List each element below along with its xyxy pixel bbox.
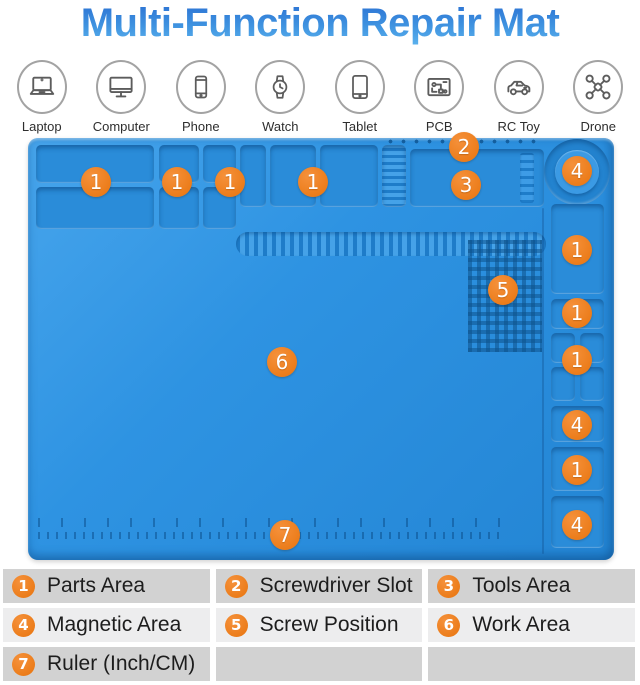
legend-item-ruler: 7 Ruler (Inch/CM): [3, 647, 210, 681]
laptop-icon: [17, 60, 67, 114]
area-marker-parts: 1: [162, 167, 192, 197]
pcb-icon: [414, 60, 464, 114]
area-marker-parts: 1: [562, 455, 592, 485]
device-tablet: Tablet: [321, 60, 399, 136]
device-label: Tablet: [342, 119, 377, 134]
area-marker-magnetic: 4: [562, 510, 592, 540]
legend-number-badge: 4: [12, 614, 35, 637]
legend-table: 1 Parts Area 2 Screwdriver Slot 3 Tools …: [0, 569, 640, 681]
page-title: Multi-Function Repair Mat: [0, 1, 640, 46]
area-marker-parts: 1: [81, 167, 111, 197]
legend-number-badge: 7: [12, 653, 35, 676]
legend-number-badge: 3: [437, 575, 460, 598]
legend-number-badge: 2: [225, 575, 248, 598]
area-marker-parts: 1: [215, 167, 245, 197]
product-infographic: Multi-Function Repair Mat Laptop Compute…: [0, 0, 640, 685]
legend-item-screw-position: 5 Screw Position: [216, 608, 423, 642]
legend-item-screwdriver-slot: 2 Screwdriver Slot: [216, 569, 423, 603]
parts-tray-wide: [320, 145, 378, 207]
legend-item-parts-area: 1 Parts Area: [3, 569, 210, 603]
area-marker-ruler: 7: [270, 520, 300, 550]
legend-item-work-area: 6 Work Area: [428, 608, 635, 642]
area-marker-parts: 1: [298, 167, 328, 197]
column-groove: [542, 208, 544, 554]
device-pcb: PCB: [400, 60, 478, 136]
legend-item-magnetic-area: 4 Magnetic Area: [3, 608, 210, 642]
area-marker-parts: 1: [562, 235, 592, 265]
device-laptop: Laptop: [3, 60, 81, 136]
legend-label: Screw Position: [260, 613, 399, 637]
area-marker-work-area: 6: [267, 347, 297, 377]
legend-label: Parts Area: [47, 574, 145, 598]
ribbed-strip: [382, 145, 406, 207]
watch-icon: [255, 60, 305, 114]
legend-label: Screwdriver Slot: [260, 574, 413, 598]
legend-number-badge: 1: [12, 575, 35, 598]
legend-label: Tools Area: [472, 574, 570, 598]
area-marker-magnetic: 4: [562, 156, 592, 186]
legend-empty-cell: [216, 647, 423, 681]
drone-icon: [573, 60, 623, 114]
device-label: Drone: [581, 119, 616, 134]
area-marker-magnetic: 4: [562, 410, 592, 440]
tablet-icon: [335, 60, 385, 114]
device-rc-toy: RC Toy: [480, 60, 558, 136]
device-drone: Drone: [559, 60, 637, 136]
ruler-cm-ticks: [38, 532, 500, 539]
device-phone: Phone: [162, 60, 240, 136]
legend-label: Magnetic Area: [47, 613, 181, 637]
repair-mat: 1 1 1 1 2 3 4 1 1 1 4 1 4 5 6 7: [28, 138, 614, 560]
device-label: Computer: [93, 119, 150, 134]
tools-tray-ridges: [520, 153, 534, 203]
device-label: PCB: [426, 119, 453, 134]
device-label: RC Toy: [498, 119, 540, 134]
device-computer: Computer: [82, 60, 160, 136]
ruler-inch-ticks: [38, 518, 500, 527]
device-watch: Watch: [241, 60, 319, 136]
area-marker-tools: 3: [451, 170, 481, 200]
device-icon-row: Laptop Computer Phone Watch Tablet: [2, 60, 638, 136]
device-label: Watch: [262, 119, 298, 134]
legend-item-tools-area: 3 Tools Area: [428, 569, 635, 603]
legend-label: Ruler (Inch/CM): [47, 652, 195, 676]
area-marker-parts: 1: [562, 298, 592, 328]
computer-icon: [96, 60, 146, 114]
area-marker-screwdriver-slot: 2: [449, 132, 479, 162]
area-marker-parts: 1: [562, 345, 592, 375]
area-marker-screw-position: 5: [488, 275, 518, 305]
rc-toy-icon: [494, 60, 544, 114]
phone-icon: [176, 60, 226, 114]
device-label: Phone: [182, 119, 220, 134]
legend-empty-cell: [428, 647, 635, 681]
legend-label: Work Area: [472, 613, 570, 637]
device-label: Laptop: [22, 119, 62, 134]
legend-number-badge: 5: [225, 614, 248, 637]
legend-number-badge: 6: [437, 614, 460, 637]
